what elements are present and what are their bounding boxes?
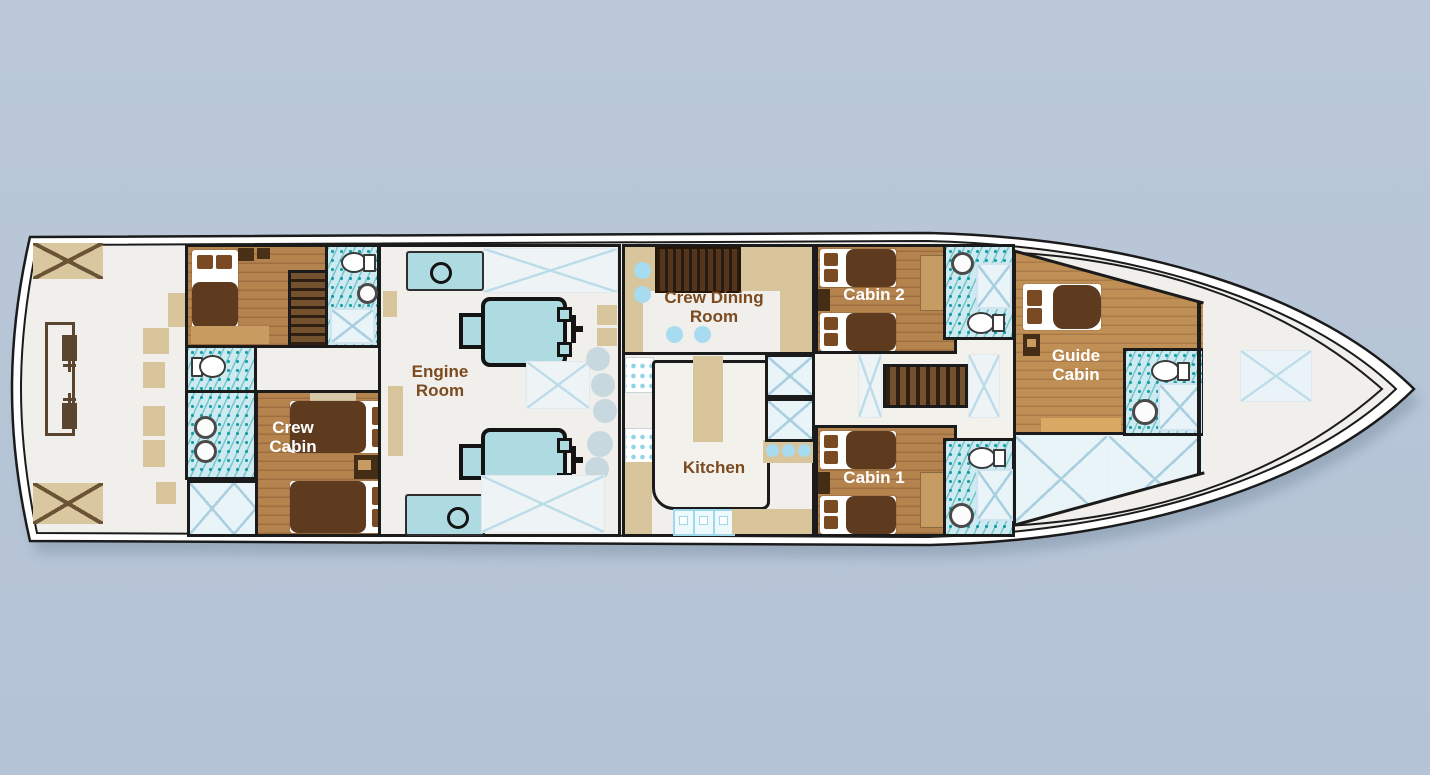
sink-icon: [194, 416, 217, 439]
pillow: [1027, 290, 1042, 306]
stool-icon: [634, 286, 651, 303]
toilet-icon: [968, 447, 996, 469]
bench-seat: [143, 406, 165, 436]
engine-shaft-stub: [574, 326, 583, 332]
stove-icon: [625, 357, 654, 393]
shower-icon: [976, 469, 1014, 521]
stool-icon: [694, 326, 711, 343]
gear-item-bottom: [62, 403, 77, 429]
pantry-locker: [765, 398, 815, 442]
nightstand: [818, 472, 830, 494]
pillow: [824, 333, 838, 346]
bench-seat: [143, 362, 165, 388]
blanket: [846, 249, 896, 287]
bathroom-guide: [1123, 348, 1205, 436]
bed: [192, 250, 238, 328]
shower-icon: [976, 263, 1012, 309]
wall-guide-left: [1013, 250, 1016, 525]
sink-icon: [949, 503, 974, 528]
sink-icon: [357, 283, 378, 304]
stool-icon: [634, 262, 651, 279]
cabinet: [597, 305, 617, 325]
kitchen: [622, 352, 815, 537]
bench: [191, 326, 269, 344]
stairs-forward: [288, 270, 328, 348]
generator-icon: [405, 494, 485, 536]
bench-seating: [625, 267, 643, 352]
bed: [820, 496, 896, 534]
desk-item: [238, 248, 254, 261]
sink-icon: [951, 252, 974, 275]
cabinet: [388, 386, 403, 456]
toilet-tank: [363, 254, 376, 272]
blanket: [846, 313, 896, 351]
engine-shaft-stub: [574, 457, 583, 463]
stairs-main: [883, 364, 968, 408]
wall-guide-inner: [1015, 432, 1125, 435]
toilet-tank: [993, 449, 1006, 467]
blanket: [290, 481, 366, 533]
toilet-tank: [1177, 362, 1190, 381]
pillow: [1027, 308, 1042, 324]
engine-flange: [557, 307, 572, 322]
stair-landing: [858, 354, 882, 418]
bow-deck-hatch: [1240, 350, 1312, 402]
bench-seat: [143, 328, 169, 354]
tank-drum: [593, 399, 617, 423]
nightstand: [354, 455, 380, 479]
pillow: [197, 255, 213, 269]
room-label-engine-room: Engine Room: [404, 362, 476, 400]
blanket: [846, 496, 896, 534]
sink-icon: [194, 440, 217, 463]
appliance-icon: [673, 509, 695, 536]
tank-drum: [591, 373, 615, 397]
bench-seat: [143, 440, 165, 467]
counter-icon: [625, 462, 652, 534]
bed: [820, 249, 896, 287]
room-label-cabin-2: Cabin 2: [830, 285, 918, 304]
room-label-crew-dining-room: Crew Dining Room: [650, 288, 778, 326]
toilet-icon: [199, 355, 226, 378]
sink-basin: [766, 444, 779, 457]
bathroom-port: [185, 345, 257, 480]
floor-hatch: [526, 361, 590, 409]
engine-flange: [557, 438, 572, 453]
cabinet: [383, 291, 397, 317]
dining-table-icon: [655, 247, 741, 293]
room-label-kitchen: Kitchen: [668, 458, 760, 477]
tank-drum: [587, 431, 613, 457]
shower-icon: [190, 483, 234, 534]
counter-icon: [732, 509, 812, 534]
bench-seating: [780, 264, 812, 352]
engine-icon: [481, 297, 567, 367]
blanket: [1053, 285, 1101, 329]
pillow: [824, 516, 838, 529]
shower-icon: [330, 308, 375, 344]
gear-cross-top-v: [68, 359, 71, 372]
room-label-guide-cabin: Guide Cabin: [1040, 346, 1112, 384]
bench-seat: [156, 482, 176, 504]
floor-hatch: [483, 248, 618, 293]
sink-basin: [798, 444, 811, 457]
stair-landing: [968, 354, 1000, 418]
deck-plan-canvas: Crew Cabin Engine Room Crew Dining Room …: [0, 0, 1430, 775]
generator-icon: [406, 251, 484, 291]
sink-basin: [782, 444, 795, 457]
sink-icon: [1132, 399, 1158, 425]
pillow: [216, 255, 232, 269]
bathroom-cabin-2: [943, 244, 1015, 340]
pillow: [824, 253, 838, 266]
desk-item: [257, 248, 270, 259]
stove-icon: [625, 428, 654, 464]
blanket: [846, 431, 896, 469]
sink-counter: [763, 440, 813, 463]
wall-divider: [188, 390, 254, 393]
gear-item-top: [62, 335, 77, 361]
wall-collision-bulkhead: [1197, 302, 1201, 474]
room-label-cabin-1: Cabin 1: [830, 468, 918, 487]
pillow: [824, 500, 838, 513]
blanket: [192, 282, 238, 328]
island-counter: [693, 356, 723, 442]
nightstand: [818, 289, 830, 311]
aft-deck-hatch-top: [33, 243, 103, 279]
pillow: [824, 317, 838, 330]
bathroom-forward: [325, 244, 380, 348]
pantry-locker: [765, 354, 815, 398]
toilet-icon: [967, 312, 995, 334]
generator-ring: [430, 262, 452, 284]
toilet-tank: [992, 314, 1005, 332]
bed-double: [1023, 284, 1101, 330]
shower-icon: [1158, 383, 1202, 431]
aft-deck-hatch-bottom: [33, 483, 103, 524]
toilet-icon: [1151, 360, 1180, 382]
bathroom-cabin-1: [943, 438, 1015, 537]
stool-icon: [666, 326, 683, 343]
generator-ring: [447, 507, 469, 529]
floor-hatch: [481, 475, 605, 533]
engine-flange: [557, 342, 572, 357]
nightstand: [1023, 334, 1040, 356]
pillow: [824, 451, 838, 464]
tank-drum: [586, 347, 610, 371]
bed: [820, 431, 896, 469]
cabinet: [597, 328, 617, 346]
appliance-icon: [693, 509, 715, 536]
pillow: [824, 435, 838, 448]
bed: [820, 313, 896, 351]
room-label-crew-cabin: Crew Cabin: [258, 418, 328, 456]
pillow: [824, 269, 838, 282]
